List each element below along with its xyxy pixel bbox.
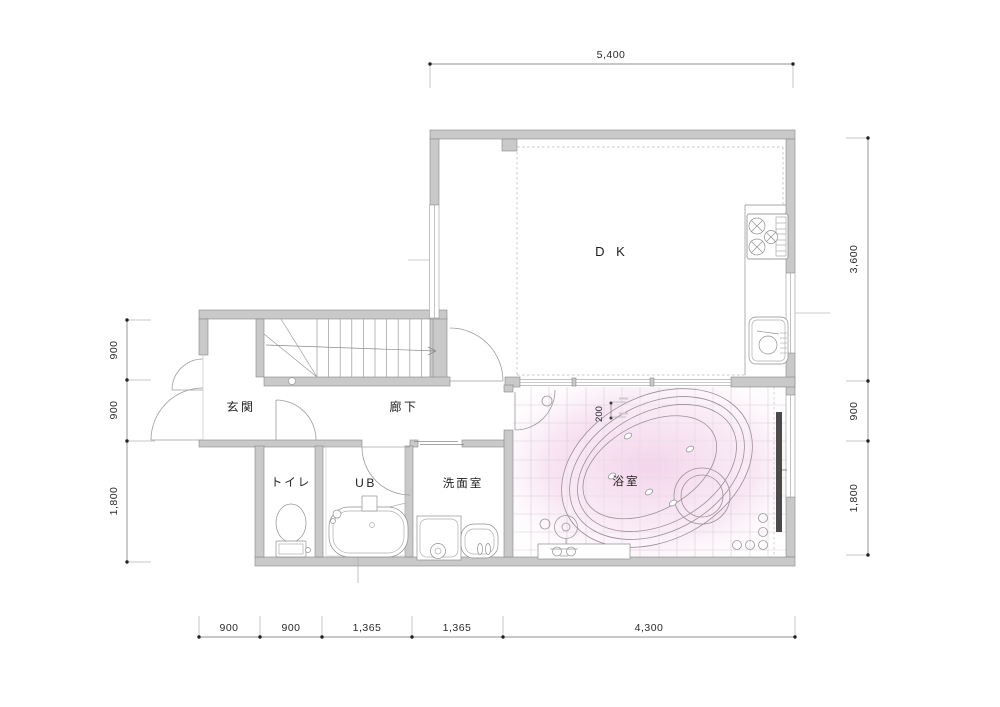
dim-left-1: 900	[108, 400, 120, 419]
wall-entrance-stairs	[256, 319, 264, 377]
dim-dot	[258, 635, 261, 638]
micro-note	[619, 413, 628, 415]
washroom-sliding-door	[414, 442, 464, 445]
dim-dot	[410, 635, 413, 638]
room-label-toilet: トイレ	[271, 477, 312, 489]
room-label-unit-bath: UB	[355, 476, 377, 490]
dim-bottom-4: 4,300	[635, 622, 664, 634]
stairs	[264, 319, 436, 385]
dk-floor-dashed-boundary	[517, 147, 783, 375]
dim-dot	[125, 318, 128, 321]
doors	[151, 328, 555, 521]
wall-bath-left	[504, 430, 513, 557]
wall-pillar	[502, 139, 517, 151]
dim-right-2: 1,800	[848, 484, 860, 513]
hall-door	[276, 400, 316, 440]
wall-bath-top-right	[731, 377, 795, 387]
wall-dk-left-lower	[430, 318, 447, 385]
dim-dot	[428, 62, 431, 65]
dim-witness-top	[430, 64, 793, 88]
stairs-winder-lines	[264, 319, 317, 377]
dim-bottom-2: 1,365	[353, 622, 382, 634]
wall-dk-top	[430, 130, 795, 139]
ub-counter	[362, 496, 377, 511]
toilet-tank	[276, 541, 306, 557]
entrance-door-main-leaf	[151, 388, 203, 440]
stairs-newel-circle	[289, 378, 296, 385]
wall-dk-left-upper	[430, 139, 439, 205]
room-label-washroom: 洗面室	[443, 476, 484, 490]
dim-dot	[320, 635, 323, 638]
dim-bottom-1: 900	[281, 622, 300, 634]
room-label-dk: D K	[595, 244, 629, 259]
wall-bottom	[255, 557, 795, 566]
wall-right-lower	[786, 497, 795, 557]
dim-witness-left	[127, 320, 155, 562]
floor-plan-canvas: D K 玄関 廊下 トイレ UB 洗面室 浴室 5,400 3,600 900 …	[0, 0, 1000, 707]
ub-drain	[370, 523, 375, 528]
basin-tap-right	[486, 544, 491, 555]
dim-bathroom-step: 200	[594, 406, 605, 422]
entrance-door-small-leaf	[172, 359, 203, 390]
dim-dot	[197, 635, 200, 638]
dim-bottom-0: 900	[219, 622, 238, 634]
toilet-paper-holder	[306, 548, 311, 553]
floor-plan-svg: D K 玄関 廊下 トイレ UB 洗面室 浴室 5,400 3,600 900 …	[0, 0, 1000, 707]
wall-entrance-left-upper	[199, 319, 208, 355]
dim-dot	[866, 379, 869, 382]
dim-top-0: 5,400	[597, 49, 626, 61]
stairs-direction-arrow	[266, 345, 436, 355]
room-label-bathroom: 浴室	[613, 474, 640, 488]
wall-window-mullion-2	[650, 378, 654, 386]
ub-faucet-handle	[331, 519, 336, 524]
dim-dot	[125, 439, 128, 442]
dim-dot	[125, 378, 128, 381]
basin-tap-left	[478, 544, 483, 555]
dim-dot	[866, 439, 869, 442]
stairs-treads	[317, 319, 433, 377]
dim-right-0: 3,600	[848, 245, 860, 274]
ub-faucet	[333, 510, 341, 518]
dim-bottom-3: 1,365	[443, 622, 472, 634]
dim-dot	[791, 62, 794, 65]
dim-left-0: 900	[108, 340, 120, 359]
washer-drain-inner	[435, 548, 441, 554]
room-label-corridor: 廊下	[389, 399, 418, 414]
towel-warmer-bar	[776, 412, 782, 532]
toilet-bowl	[276, 504, 306, 542]
wall-bath-left-stub	[504, 385, 513, 392]
room-label-entrance: 玄関	[226, 399, 255, 414]
wall-toilet-ub	[315, 446, 323, 557]
wall-window-mullion-1	[572, 378, 576, 386]
dim-dot	[866, 136, 869, 139]
dim-dot	[866, 553, 869, 556]
micro-note	[619, 398, 628, 400]
dk-door	[450, 328, 503, 381]
kitchen-sink	[749, 317, 788, 364]
dim-right-1: 900	[848, 401, 860, 420]
wall-corridor-bottom-left	[199, 440, 362, 447]
dim-left-2: 1,800	[108, 487, 120, 516]
bathroom-bench	[538, 544, 630, 559]
dim-dot	[125, 560, 128, 563]
wall-entrance-top	[199, 310, 447, 319]
wall-toilet-left	[255, 446, 264, 557]
dim-dot	[501, 635, 504, 638]
dim-dot	[793, 635, 796, 638]
